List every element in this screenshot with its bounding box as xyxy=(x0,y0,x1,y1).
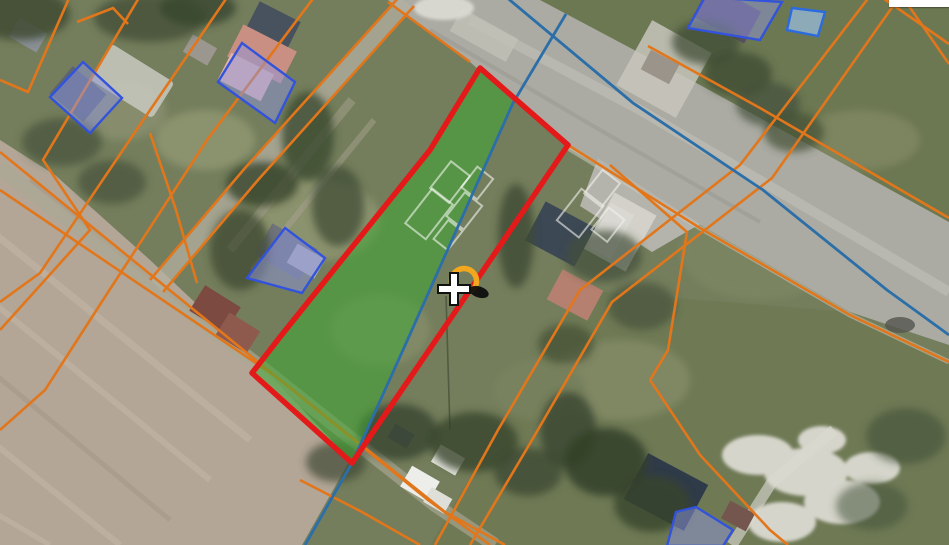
corner-panel-strip xyxy=(889,0,949,7)
building-footprint-light[interactable] xyxy=(787,8,825,36)
map-viewport[interactable] xyxy=(0,0,949,545)
map-canvas[interactable] xyxy=(0,0,949,545)
